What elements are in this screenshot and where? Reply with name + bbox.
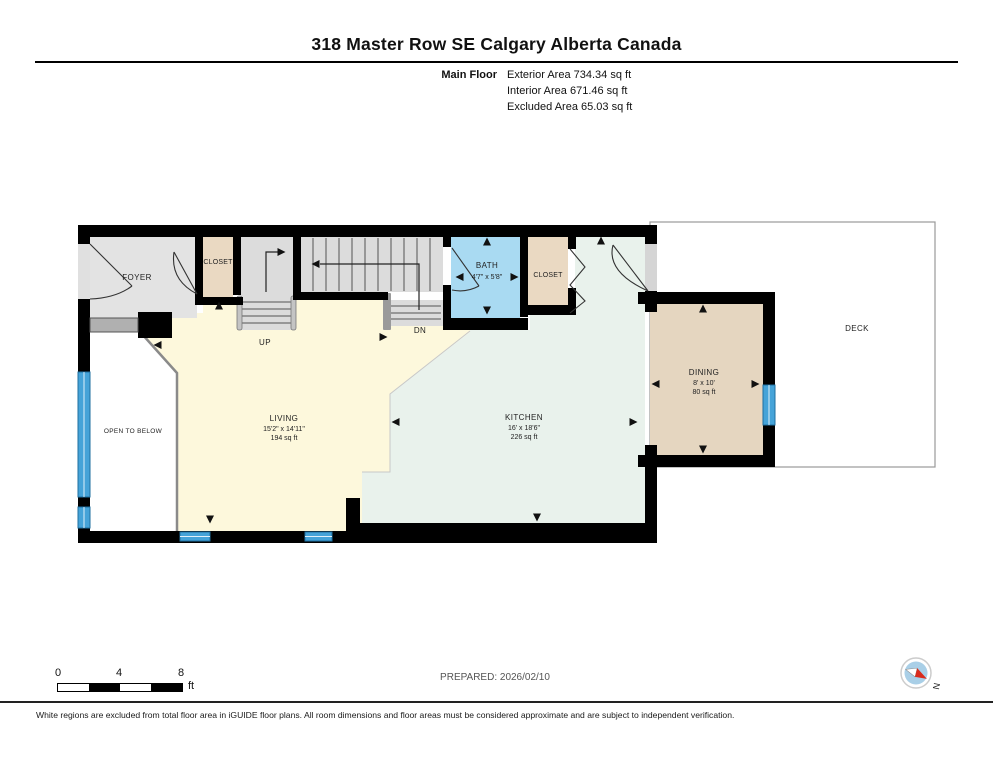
bath-dims: 4'7" x 5'8" [472,274,503,281]
compass-north-label: N [931,682,942,690]
entry-threshold [78,244,90,299]
scale-tick-4: 4 [112,667,126,679]
footer-divider [0,701,993,703]
open-to-below-label: OPEN TO BELOW [104,428,163,435]
closet-foyer-label: CLOSET [203,259,233,266]
scale-bar-segment [89,684,120,691]
living-dims: 15'2" x 14'11" [263,426,305,433]
closet-kitchen-label: CLOSET [533,272,563,279]
kitchen-label: KITCHEN [505,413,543,422]
scale-tick-0: 0 [51,667,65,679]
foyer-railing [90,318,138,332]
scale-bar [57,683,183,692]
room-closet-foyer [203,237,233,300]
living-label: LIVING [270,414,299,423]
dining-label: DINING [689,368,719,377]
stairs-down-label: DN [414,326,426,335]
kitchen-dims: 16' x 18'6" [508,425,541,432]
stairs-up-label: UP [259,338,271,347]
dining-dims: 8' x 10' [693,380,715,387]
deck-door-threshold [645,244,657,291]
floor-plan: FOYER CLOSET UP DN BATH 4'7" x 5'8" CLOS… [0,0,993,768]
scale-bar-segment [58,684,89,691]
living-area: 194 sq ft [271,435,298,442]
bath-label: BATH [476,261,498,270]
disclaimer-text: White regions are excluded from total fl… [36,710,966,720]
room-closet-kitchen [528,237,568,305]
compass-icon: N [892,652,962,700]
scale-bar-segment [151,684,182,691]
deck-label: DECK [845,324,869,333]
scale-bar-segment [120,684,151,691]
dining-area: 80 sq ft [693,389,716,396]
kitchen-area: 226 sq ft [511,434,538,441]
scale-unit-label: ft [188,680,194,692]
scale-tick-8: 8 [174,667,188,679]
prepared-date: PREPARED: 2026/02/10 [400,672,590,683]
foyer-label: FOYER [122,273,152,282]
